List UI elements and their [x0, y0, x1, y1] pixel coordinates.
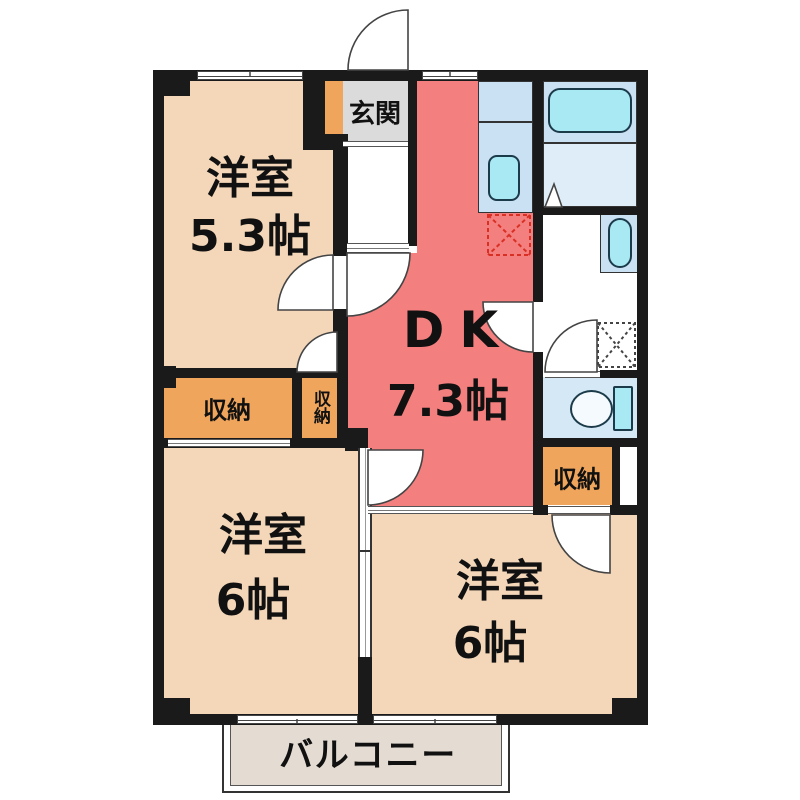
floor-plan: 玄関 洋室 5.3帖 DK 7.3帖 収納 収納 収納 洋室 6帖 洋室 6帖 …	[0, 0, 800, 800]
storage-wide-label: 収納	[203, 391, 251, 426]
balcony-label: バルコニー	[279, 728, 457, 777]
pillar	[164, 698, 190, 714]
storage-tall-label: 収納	[310, 390, 328, 424]
toilet-door-threshold	[545, 371, 600, 378]
window-bedroom-6-left	[237, 715, 358, 724]
wall	[292, 378, 302, 440]
wall	[408, 81, 417, 246]
dk-floor-lower	[368, 428, 533, 515]
bedroom-5-3-size: 5.3帖	[189, 200, 311, 264]
wall	[164, 368, 348, 378]
shoe-cabinet	[324, 81, 343, 137]
wall	[637, 70, 648, 725]
wall	[610, 505, 643, 515]
window-bedroom-6-right	[373, 715, 497, 724]
wall	[600, 370, 637, 378]
storage-right-label: 収納	[553, 460, 601, 495]
door-opening	[533, 302, 543, 352]
dk-bedroom-sliding-door	[368, 506, 533, 514]
wall	[533, 207, 648, 215]
entrance-step	[343, 141, 408, 147]
toilet-tank-icon	[613, 386, 633, 431]
washing-machine-space-icon	[598, 323, 635, 367]
wall	[333, 148, 348, 256]
dk-name: DK	[403, 301, 513, 359]
wall	[358, 657, 372, 717]
pillar	[164, 81, 190, 96]
shower-area-floor	[543, 143, 637, 207]
wall	[153, 70, 164, 725]
bedroom-5-3-name: 洋室	[206, 142, 294, 206]
storage-right-opening	[548, 506, 610, 514]
entrance-label: 玄関	[349, 94, 401, 131]
wall	[533, 505, 548, 515]
window-dk	[422, 71, 478, 80]
wall	[533, 438, 643, 447]
kitchen-sink-icon	[488, 155, 520, 201]
bedroom-6-right-name: 洋室	[456, 545, 544, 609]
entrance-door-arc-icon	[348, 10, 408, 70]
bathtub-icon	[548, 88, 632, 133]
toilet-door-arc-icon	[545, 320, 597, 372]
storage-wide-sliding-door	[168, 439, 290, 447]
fusuma-partition	[358, 448, 372, 657]
wall	[612, 447, 620, 505]
bedroom-6-left-size: 6帖	[216, 564, 291, 628]
toilet-bowl-icon	[570, 390, 613, 428]
washbasin-icon	[608, 218, 632, 268]
window-bedroom-5-3	[197, 71, 303, 80]
bedroom-6-left-name: 洋室	[219, 499, 307, 563]
hall-dk-threshold	[347, 243, 409, 253]
pillar	[612, 698, 637, 714]
kitchen-counter-divider	[478, 121, 533, 123]
dk-size: 7.3帖	[387, 365, 509, 429]
bedroom-6-right-size: 6帖	[453, 607, 528, 671]
